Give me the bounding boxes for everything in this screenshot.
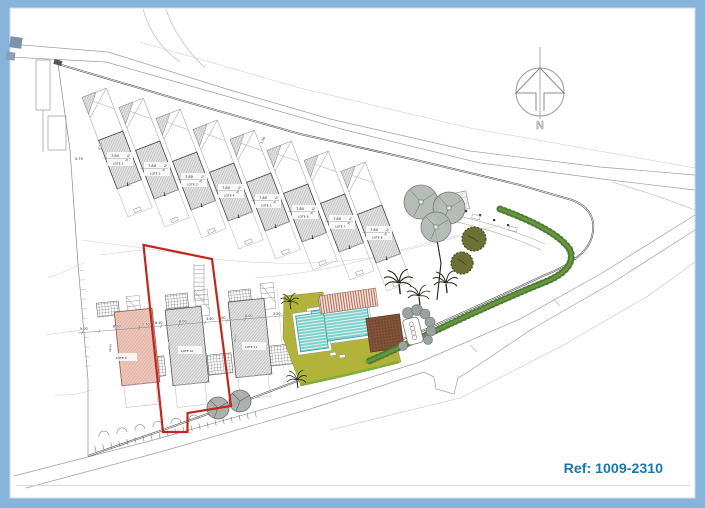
legend-swatch [9, 36, 22, 49]
pool-small [296, 312, 329, 352]
svg-text:1: 1 [126, 182, 129, 188]
site-plan-drawing: 7.80 LOTE 1 15.15 1 7.80 LOTE 2 15.15 1 … [0, 0, 705, 508]
svg-text:1: 1 [311, 235, 314, 241]
svg-text:2.70: 2.70 [142, 323, 150, 327]
svg-text:7.80: 7.80 [370, 228, 379, 232]
svg-text:1: 1 [274, 224, 277, 230]
svg-text:5.00: 5.00 [80, 327, 88, 331]
svg-text:1: 1 [237, 214, 240, 220]
svg-text:8.00: 8.00 [113, 325, 121, 329]
svg-text:7.80: 7.80 [148, 164, 157, 168]
svg-text:14.00: 14.00 [233, 334, 238, 342]
svg-text:LOTE 9: LOTE 9 [116, 356, 127, 360]
svg-text:3.20: 3.20 [273, 312, 281, 316]
svg-text:1: 1 [163, 192, 166, 198]
svg-text:7.80: 7.80 [222, 186, 231, 190]
svg-text:7.80: 7.80 [333, 217, 342, 221]
svg-text:LOTE 1: LOTE 1 [113, 162, 124, 166]
svg-text:8.00: 8.00 [245, 314, 253, 318]
svg-text:7.80: 7.80 [259, 196, 268, 200]
svg-text:LOTE 5: LOTE 5 [261, 204, 272, 208]
svg-text:1: 1 [348, 245, 351, 251]
svg-text:LOTE 10: LOTE 10 [181, 349, 194, 353]
svg-text:7.80: 7.80 [185, 175, 194, 179]
svg-text:5.75: 5.75 [75, 157, 83, 161]
svg-text:1: 1 [385, 256, 388, 262]
svg-text:LOTE 3: LOTE 3 [187, 183, 198, 187]
svg-text:7.80: 7.80 [296, 207, 305, 211]
svg-text:14.00: 14.00 [167, 342, 172, 350]
svg-text:1: 1 [200, 203, 203, 209]
listing-plan-image: 7.80 LOTE 1 15.15 1 7.80 LOTE 2 15.15 1 … [0, 0, 705, 508]
legend-swatch-2 [5, 51, 15, 60]
svg-text:14.00: 14.00 [108, 344, 113, 352]
svg-text:LOTE 7: LOTE 7 [335, 225, 346, 229]
svg-text:LOTE 11: LOTE 11 [245, 345, 258, 349]
ref-label: Ref: 1009-2310 [564, 461, 663, 477]
svg-text:6.10: 6.10 [155, 321, 163, 325]
svg-text:7.80: 7.80 [111, 154, 120, 158]
svg-text:LOTE 4: LOTE 4 [224, 194, 235, 198]
svg-text:8.00: 8.00 [179, 320, 187, 324]
svg-text:LOTE 8: LOTE 8 [372, 236, 383, 240]
svg-text:3.50: 3.50 [206, 317, 214, 321]
svg-text:LOTE 2: LOTE 2 [150, 172, 161, 176]
svg-text:LOTE 6: LOTE 6 [298, 215, 309, 219]
compass-north-letter: N [536, 119, 544, 132]
